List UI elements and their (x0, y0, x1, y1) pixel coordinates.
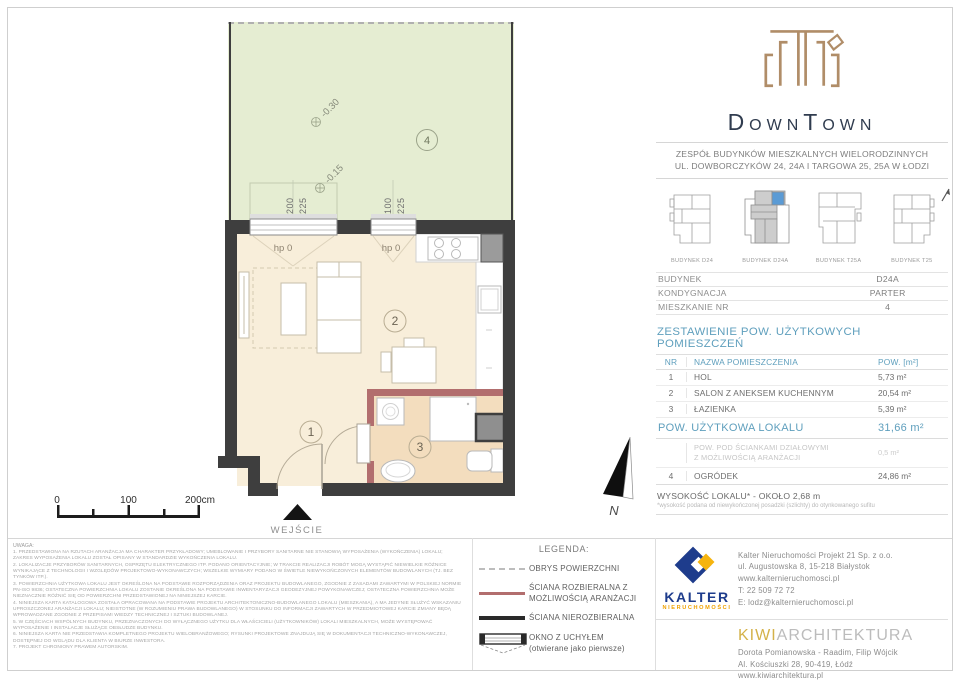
kiwi-contact: Dorota Pomianowska - Raadim, Filip Wójci… (738, 647, 948, 682)
height-footnote: *wysokość podana od niewykończonej posad… (656, 502, 948, 515)
legend-item-obrys: OBRYS POWIERZCHNI (479, 564, 649, 574)
kiwi-wordmark: KIWIARCHITEKTURA (738, 627, 948, 645)
svg-text:0: 0 (54, 495, 60, 506)
svg-text:200: 200 (285, 197, 295, 214)
window-left (250, 214, 337, 235)
svg-text:225: 225 (298, 197, 308, 214)
disclaimer-notes: UWAGA: 1. PRZEDSTAWIONA NA RZUTACH ARANŻ… (13, 543, 463, 651)
divider (472, 538, 473, 670)
svg-text:200cm: 200cm (185, 495, 215, 506)
note-item: 2. LOKALIZACJE PRZYBORÓW SANITARNYCH, OS… (13, 563, 463, 582)
note-item: 7. PROJEKT CHRONIONY PRAWEM AUTORSKIM. (13, 645, 463, 651)
kalter-subtitle: NIERUCHOMOŚCI (656, 605, 738, 611)
building-thumbnails: BUDYNEK D24 BUDYNEK D24A (656, 179, 948, 268)
chair (404, 338, 424, 347)
info-panel: DownTown ZESPÓŁ BUDYNKÓW MIESZKALNYCH WI… (656, 18, 948, 515)
kiwi-block: KIWIARCHITEKTURA Dorota Pomianowska - Ra… (656, 620, 948, 682)
dashed-line-swatch (479, 568, 525, 570)
toilet (467, 449, 503, 472)
address-line-1: ZESPÓŁ BUDYNKÓW MIESZKALNYCH WIELORODZIN… (658, 148, 946, 160)
window-icon (479, 633, 527, 655)
note-item: 3. POWIERZCHNIA UŻYTKOWA LOKALU JEST OKR… (13, 582, 463, 601)
duct (481, 234, 503, 262)
table-row: 2 SALON Z ANEKSEM KUCHENNYM 20,54 m² (656, 386, 948, 402)
ceiling-height-note: WYSOKOŚĆ LOKALU* - OKOŁO 2,68 m (656, 485, 948, 502)
stove (428, 237, 478, 260)
table-row: BUDYNEK D24A (656, 272, 948, 286)
divider (8, 538, 952, 539)
legend-title: LEGENDA: (479, 544, 649, 554)
svg-text:3: 3 (417, 440, 424, 454)
shaft (476, 414, 504, 441)
chair (381, 352, 391, 372)
legend-item-removable-wall: ŚCIANA ROZBIERALNA Z MOŻLIWOŚCIĄ ARANŻAC… (479, 583, 649, 604)
companies-block: KALTER NIERUCHOMOŚCI Kalter Nieruchomośc… (656, 543, 948, 682)
svg-text:100: 100 (120, 495, 137, 506)
entrance-marker: WEJŚCIE (271, 504, 324, 536)
garden-area-row: 4 OGRÓDEK 24,86 m² (656, 468, 948, 485)
partition-area-row: POW. POD ŚCIANKAMI DZIAŁOWYMI Z MOŻLIWOŚ… (656, 439, 948, 468)
north-arrow-icon: N (603, 437, 633, 518)
floor-plan: hp 0 hp 0 1 2 3 4 -0.30 -0.15 200 225 10… (0, 0, 655, 540)
project-address: ZESPÓŁ BUDYNKÓW MIESZKALNYCH WIELORODZIN… (656, 142, 948, 179)
table-row: KONDYGNACJA PARTER (656, 286, 948, 300)
black-wall-swatch (479, 616, 525, 620)
north-label: N (609, 503, 619, 518)
downtown-logo-icon (751, 26, 853, 102)
window-right (371, 214, 416, 235)
legend-item-window: OKNO Z UCHYŁEM (otwierane jako pierwsze) (479, 633, 649, 655)
entrance-label: WEJŚCIE (271, 524, 324, 536)
svg-text:2: 2 (392, 314, 399, 328)
total-area-row: POW. UŻYTKOWA LOKALU 31,66 m² (656, 418, 948, 439)
table-row: 1 HOL 5,73 m² (656, 370, 948, 386)
garden-area (228, 22, 514, 234)
dining-table (392, 347, 436, 383)
svg-text:100: 100 (383, 197, 393, 214)
building-thumbnail-t25a[interactable]: BUDYNEK T25A (805, 187, 873, 264)
svg-text:1: 1 (308, 425, 315, 439)
red-wall-swatch (479, 592, 525, 595)
note-item: 1. PRZEDSTAWIONA NA RZUTACH ARANŻACJA MA… (13, 550, 463, 563)
area-table: ZESTAWIENIE POW. UŻYTKOWYCH POMIESZCZEŃ … (656, 322, 948, 515)
note-item: 5. W CZĘŚCIACH WSPÓLNYCH BUDYNKU, PRZEZN… (13, 620, 463, 633)
kalter-name: KALTER (656, 589, 738, 605)
window-sill-label-left: hp 0 (274, 243, 293, 254)
legend: LEGENDA: OBRYS POWIERZCHNI ŚCIANA ROZBIE… (479, 544, 649, 664)
mini-north-icon (940, 187, 952, 203)
kalter-email[interactable]: E: lodz@kalternieruchomosci.pl (738, 597, 893, 609)
scale-bar: 0 100 200cm (54, 495, 215, 518)
area-table-header: NR NAZWA POMIESZCZENIA POW. [m²] (656, 354, 948, 370)
address-line-2: UL. DOWBORCZYKÓW 24, 24A I TARGOWA 25, 2… (658, 160, 946, 172)
kalter-diamond-icon (675, 547, 719, 587)
brand-wordmark: DownTown (656, 109, 948, 136)
kalter-website[interactable]: www.kalternieruchomosci.pl (738, 573, 893, 585)
kiwi-website[interactable]: www.kiwiarchitektura.pl (738, 670, 948, 682)
window-sill-label-right: hp 0 (382, 243, 401, 254)
tv-cabinet (281, 283, 306, 335)
area-table-title: ZESTAWIENIE POW. UŻYTKOWYCH POMIESZCZEŃ (656, 322, 948, 354)
building-thumbnail-t25[interactable]: BUDYNEK T25 (878, 187, 946, 264)
kitchen-sink (478, 286, 501, 313)
kalter-logo: KALTER NIERUCHOMOŚCI (656, 547, 738, 611)
table-row: 3 ŁAZIENKA 5,39 m² (656, 402, 948, 418)
brand-block: DownTown (656, 18, 948, 142)
svg-text:225: 225 (396, 197, 406, 214)
legend-item-structural-wall: ŚCIANA NIEROZBIERALNA (479, 613, 649, 623)
note-item: 4. NINIEJSZA KARTA KATALOGOWA ZOSTAŁA OP… (13, 601, 463, 620)
washing-machine (377, 398, 404, 425)
building-thumbnail-d24[interactable]: BUDYNEK D24 (658, 187, 726, 264)
unit-info-table: BUDYNEK D24A KONDYGNACJA PARTER MIESZKAN… (656, 272, 948, 315)
kalter-contact: Kalter Nieruchomości Projekt 21 Sp. z o.… (738, 550, 893, 608)
note-item: 6. NINIEJSZA KARTA NIE PRZEDSTAWIA KOMPL… (13, 632, 463, 645)
bathroom-sink (381, 460, 415, 482)
notes-title: UWAGA: (13, 543, 463, 549)
building-thumbnail-d24a[interactable]: BUDYNEK D24A (731, 187, 799, 264)
kalter-block: KALTER NIERUCHOMOŚCI Kalter Nieruchomośc… (656, 543, 948, 620)
svg-text:4: 4 (424, 135, 430, 147)
table-row: MIESZKANIE NR 4 (656, 300, 948, 315)
kitchen-counter-side (476, 262, 503, 390)
